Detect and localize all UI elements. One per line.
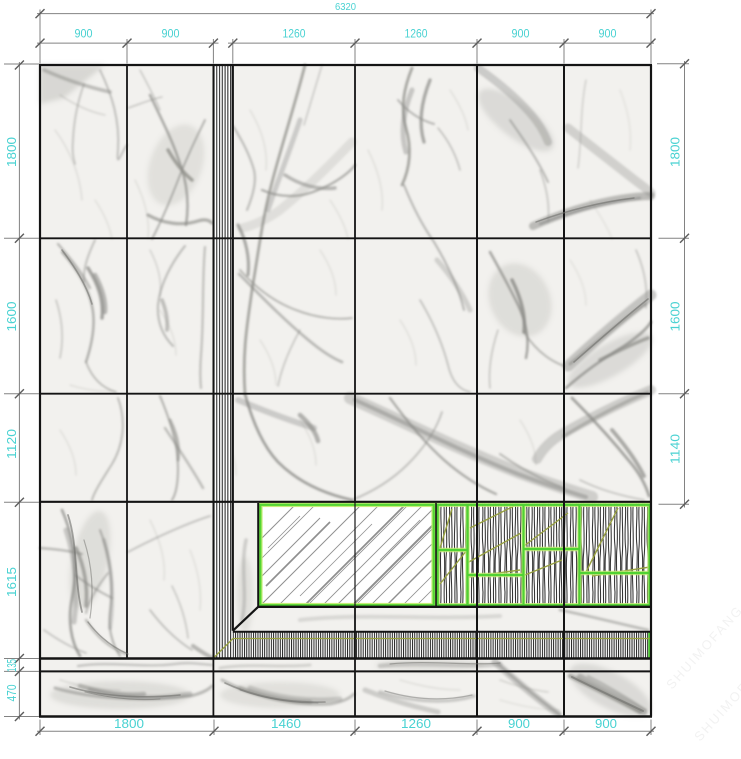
svg-text:900: 900 (508, 716, 530, 731)
svg-text:1260: 1260 (283, 27, 306, 41)
svg-text:900: 900 (595, 716, 617, 731)
svg-text:1140: 1140 (668, 434, 683, 464)
svg-text:900: 900 (162, 27, 180, 41)
svg-text:1460: 1460 (271, 716, 301, 731)
svg-text:1800: 1800 (114, 716, 144, 731)
svg-text:1120: 1120 (4, 429, 19, 459)
svg-text:135: 135 (4, 659, 19, 672)
svg-text:1600: 1600 (4, 302, 19, 332)
svg-text:900: 900 (512, 27, 530, 41)
svg-text:1260: 1260 (401, 716, 431, 731)
svg-text:1600: 1600 (668, 302, 683, 332)
svg-text:470: 470 (4, 685, 19, 702)
svg-text:900: 900 (599, 27, 617, 41)
svg-text:1800: 1800 (4, 137, 19, 167)
svg-text:1260: 1260 (405, 27, 428, 41)
svg-text:6320: 6320 (335, 2, 356, 13)
svg-text:1615: 1615 (4, 567, 19, 597)
svg-text:1800: 1800 (668, 137, 683, 167)
svg-text:900: 900 (75, 27, 93, 41)
